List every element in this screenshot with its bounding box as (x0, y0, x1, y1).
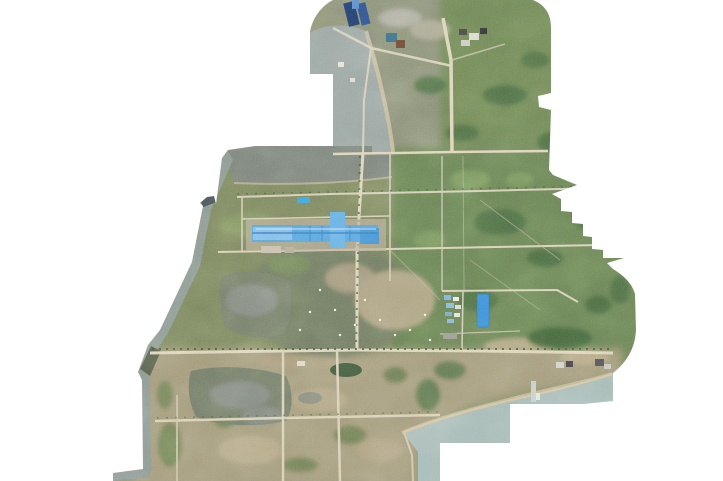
aerial-orthomosaic (0, 0, 723, 481)
texture-grain-overlay (0, 0, 723, 481)
map-clipped-area (0, 0, 723, 481)
aerial-map-svg (0, 0, 723, 481)
